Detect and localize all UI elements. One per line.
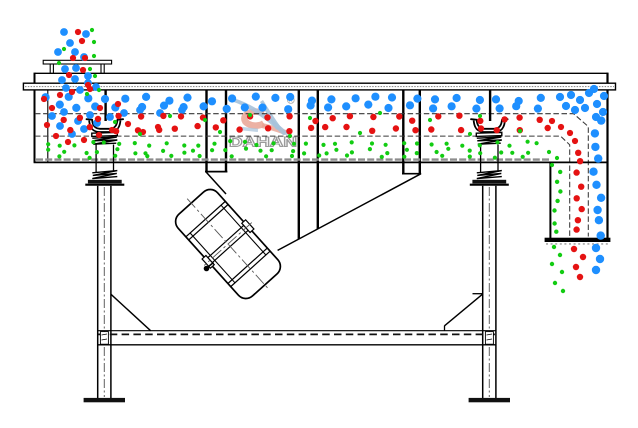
svg-text:DAHAN: DAHAN: [229, 135, 297, 150]
